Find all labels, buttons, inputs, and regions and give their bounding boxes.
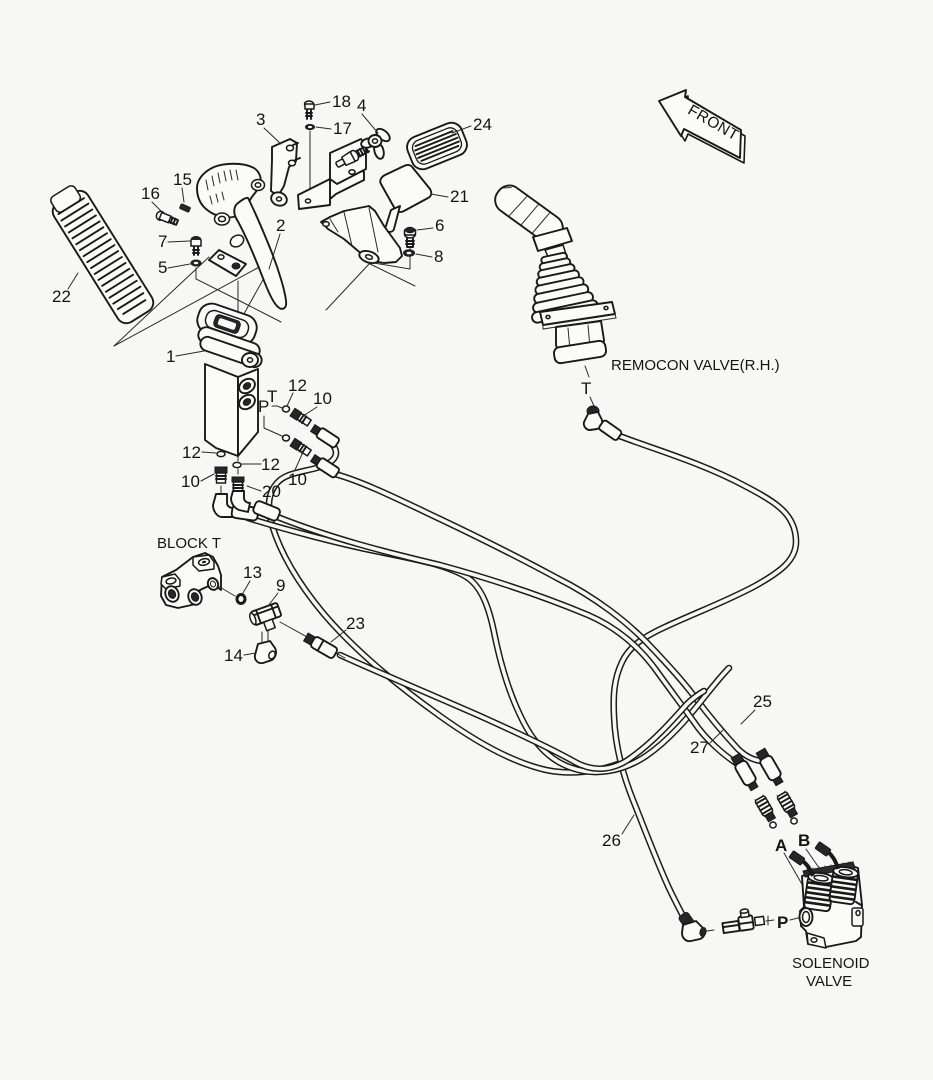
- svg-text:27: 27: [690, 738, 709, 757]
- svg-text:T: T: [581, 379, 591, 398]
- svg-text:A: A: [775, 836, 787, 855]
- svg-text:VALVE: VALVE: [806, 973, 852, 990]
- svg-text:5: 5: [158, 258, 167, 277]
- svg-text:14: 14: [224, 646, 243, 665]
- svg-text:10: 10: [288, 470, 307, 489]
- svg-text:22: 22: [52, 287, 71, 306]
- svg-text:15: 15: [173, 170, 192, 189]
- svg-text:2: 2: [276, 216, 285, 235]
- svg-text:10: 10: [181, 472, 200, 491]
- svg-text:REMOCON VALVE(R.H.): REMOCON VALVE(R.H.): [611, 357, 780, 374]
- svg-text:23: 23: [346, 614, 365, 633]
- svg-text:25: 25: [753, 692, 772, 711]
- svg-text:T: T: [267, 387, 277, 406]
- svg-text:16: 16: [141, 184, 160, 203]
- svg-text:BLOCK T: BLOCK T: [157, 535, 221, 552]
- svg-text:SOLENOID: SOLENOID: [792, 955, 870, 972]
- svg-text:26: 26: [602, 831, 621, 850]
- svg-text:24: 24: [473, 115, 492, 134]
- svg-text:8: 8: [434, 247, 443, 266]
- svg-text:1: 1: [166, 347, 175, 366]
- svg-text:7: 7: [158, 232, 167, 251]
- svg-text:10: 10: [313, 389, 332, 408]
- svg-text:B: B: [798, 831, 810, 850]
- svg-text:4: 4: [357, 96, 366, 115]
- svg-text:9: 9: [276, 576, 285, 595]
- svg-text:17: 17: [333, 119, 352, 138]
- svg-text:P: P: [777, 913, 788, 932]
- svg-text:13: 13: [243, 563, 262, 582]
- svg-text:3: 3: [256, 110, 265, 129]
- svg-text:21: 21: [450, 187, 469, 206]
- svg-text:12: 12: [288, 376, 307, 395]
- svg-text:6: 6: [435, 216, 444, 235]
- svg-text:12: 12: [182, 443, 201, 462]
- svg-text:18: 18: [332, 92, 351, 111]
- svg-text:12: 12: [261, 455, 280, 474]
- svg-text:20: 20: [262, 482, 281, 501]
